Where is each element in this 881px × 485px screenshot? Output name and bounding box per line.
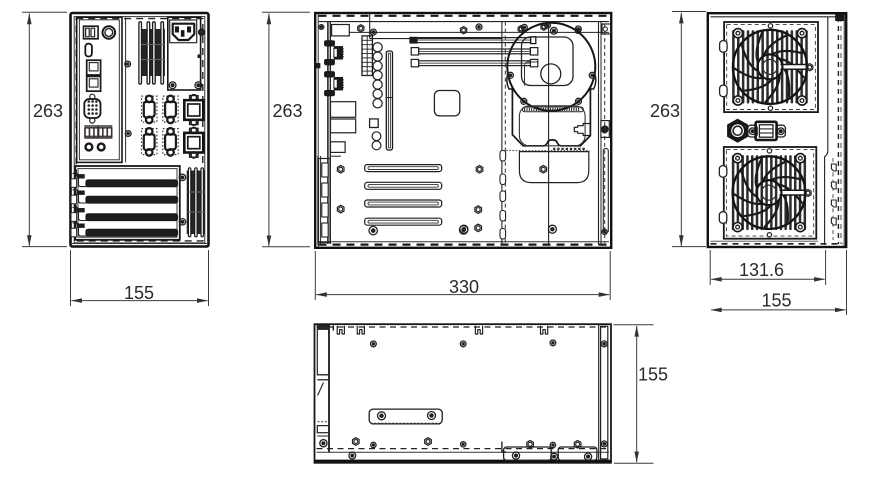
svg-text:263: 263 <box>33 101 63 121</box>
svg-text:263: 263 <box>273 101 303 121</box>
svg-text:155: 155 <box>761 291 791 311</box>
svg-text:330: 330 <box>449 277 479 297</box>
svg-text:155: 155 <box>638 365 668 385</box>
svg-text:155: 155 <box>124 283 154 303</box>
svg-text:131.6: 131.6 <box>739 260 784 280</box>
svg-text:263: 263 <box>650 101 680 121</box>
